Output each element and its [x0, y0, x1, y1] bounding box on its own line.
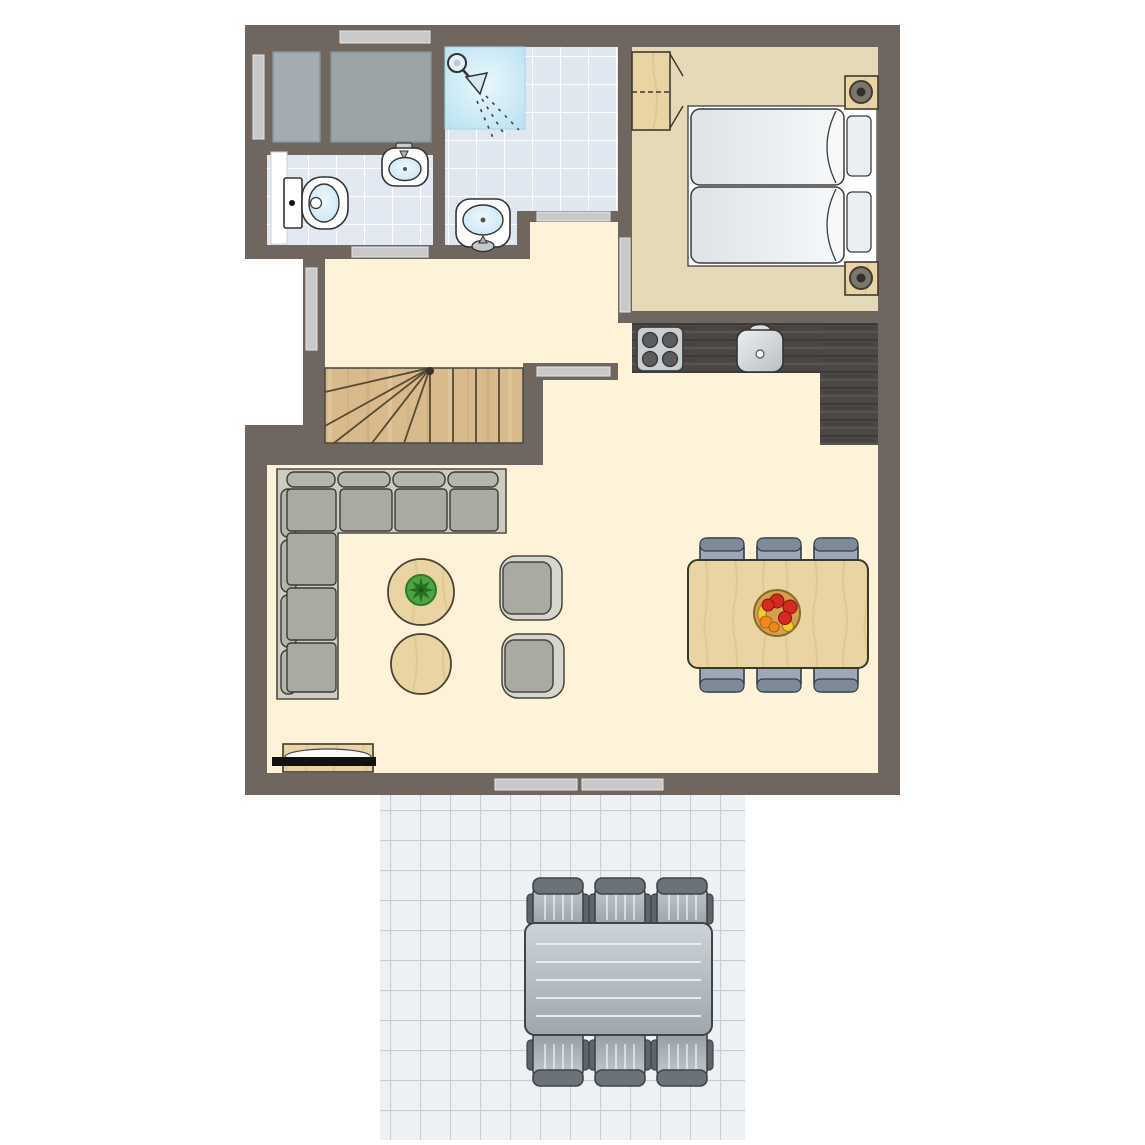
- wall-bathroom-shower: [433, 47, 445, 259]
- cabinet-right: [331, 52, 431, 142]
- nightstand-bottom: [845, 262, 878, 295]
- dining-set: [688, 538, 868, 692]
- armchair-top: [500, 556, 562, 620]
- mattress-bottom: [691, 187, 844, 263]
- hallway-floor: [325, 257, 618, 368]
- nightstand-top: [845, 76, 878, 109]
- floor-plan-canvas: [0, 0, 1145, 1145]
- tv-sideboard: [272, 744, 376, 772]
- outdoor-table: [525, 923, 712, 1035]
- terrace: [380, 795, 745, 1140]
- window-left: [253, 55, 264, 139]
- armchair-bottom: [502, 634, 564, 698]
- hall-living-door: [537, 367, 610, 376]
- patio-door-right: [582, 779, 663, 790]
- wall-right-of-stairs: [523, 368, 543, 465]
- storage-cabinets: [273, 52, 431, 142]
- bathroom-door: [352, 247, 428, 257]
- pillow: [847, 116, 871, 176]
- stairs: [325, 367, 523, 443]
- mattress-top: [691, 109, 844, 185]
- coffee-table-with-plant: [388, 559, 454, 625]
- patio-door-left: [495, 779, 577, 790]
- sink-icon: [737, 325, 783, 373]
- coffee-table: [391, 634, 451, 694]
- pillow: [847, 192, 871, 252]
- wall-below-stairs: [245, 443, 543, 465]
- window-top: [340, 31, 430, 43]
- kitchen-counter-side: [820, 373, 878, 445]
- washbasin-icon: [382, 143, 428, 186]
- toilet-icon: [284, 177, 348, 229]
- plant-icon: [406, 575, 436, 605]
- shower-room-door: [537, 212, 610, 221]
- tv-icon: [272, 757, 376, 766]
- living-room-floor-strip: [618, 323, 632, 373]
- floor-plan: [0, 0, 1145, 1145]
- cabinet-left: [273, 52, 320, 142]
- bedroom-door: [620, 238, 630, 312]
- stair-apex: [426, 367, 434, 375]
- wall-bedroom-bottom: [618, 311, 878, 323]
- hob-icon: [637, 327, 683, 371]
- living-room-floor-side: [823, 445, 878, 465]
- wall-right: [878, 25, 900, 795]
- washbasin-large-icon: [456, 199, 510, 252]
- hallway-window: [306, 268, 317, 350]
- hallway-extension-floor: [530, 222, 618, 257]
- twin-beds: [688, 106, 877, 266]
- fruit-bowl-icon: [754, 590, 800, 636]
- living-room-floor-upper: [543, 373, 823, 465]
- wall-left-lower: [245, 425, 267, 795]
